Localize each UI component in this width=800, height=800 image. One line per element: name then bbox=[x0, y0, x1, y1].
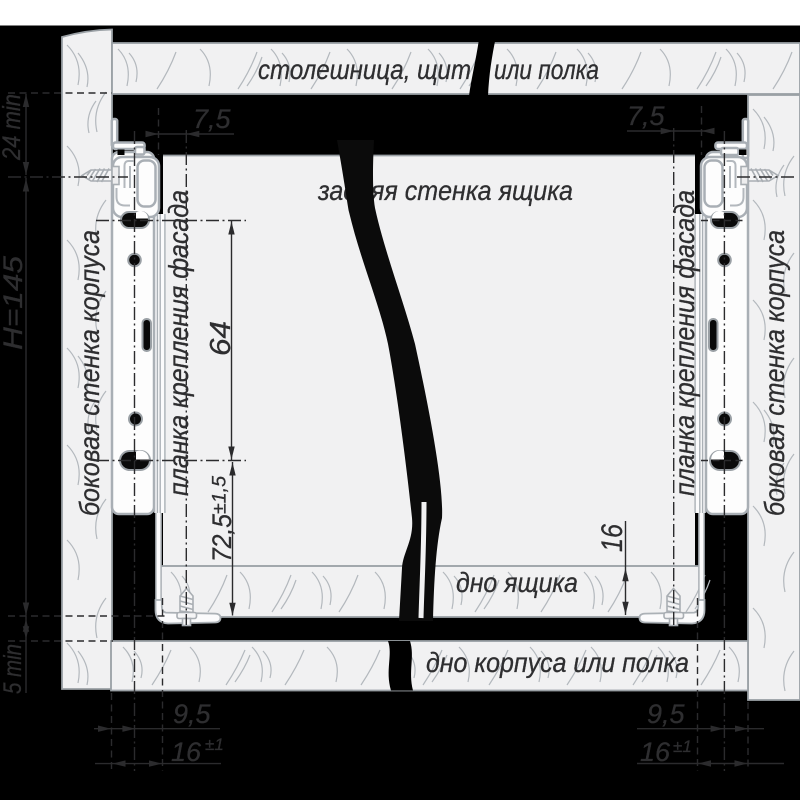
svg-text:16: 16 bbox=[640, 737, 671, 767]
svg-text:±1: ±1 bbox=[205, 735, 224, 754]
svg-text:дно корпуса или полка: дно корпуса или полка bbox=[426, 647, 689, 678]
svg-text:±1,5: ±1,5 bbox=[210, 476, 231, 514]
svg-text:9,5: 9,5 bbox=[647, 699, 686, 729]
svg-text:5 min: 5 min bbox=[0, 644, 27, 694]
svg-text:столешница, щит: столешница, щит bbox=[258, 54, 471, 85]
svg-text:дно ящика: дно ящика bbox=[456, 567, 578, 598]
svg-text:64: 64 bbox=[205, 321, 237, 356]
svg-text:планка крепления фасада: планка крепления фасада bbox=[163, 190, 194, 496]
svg-text:7,5: 7,5 bbox=[627, 101, 666, 131]
svg-text:±1: ±1 bbox=[673, 737, 692, 756]
svg-text:или полка: или полка bbox=[494, 54, 599, 85]
svg-text:7,5: 7,5 bbox=[193, 104, 232, 134]
svg-text:боковая стенка корпуса: боковая стенка корпуса bbox=[74, 230, 105, 516]
svg-text:16: 16 bbox=[171, 737, 202, 767]
svg-text:72,5: 72,5 bbox=[207, 513, 237, 562]
svg-text:H=145: H=145 bbox=[0, 255, 28, 350]
svg-text:боковая стенка корпуса: боковая стенка корпуса bbox=[759, 230, 790, 516]
svg-text:24 min: 24 min bbox=[0, 94, 26, 161]
svg-text:9,5: 9,5 bbox=[173, 699, 212, 729]
svg-text:планка крепления фасада: планка крепления фасада bbox=[669, 190, 700, 496]
svg-text:16: 16 bbox=[596, 524, 629, 552]
